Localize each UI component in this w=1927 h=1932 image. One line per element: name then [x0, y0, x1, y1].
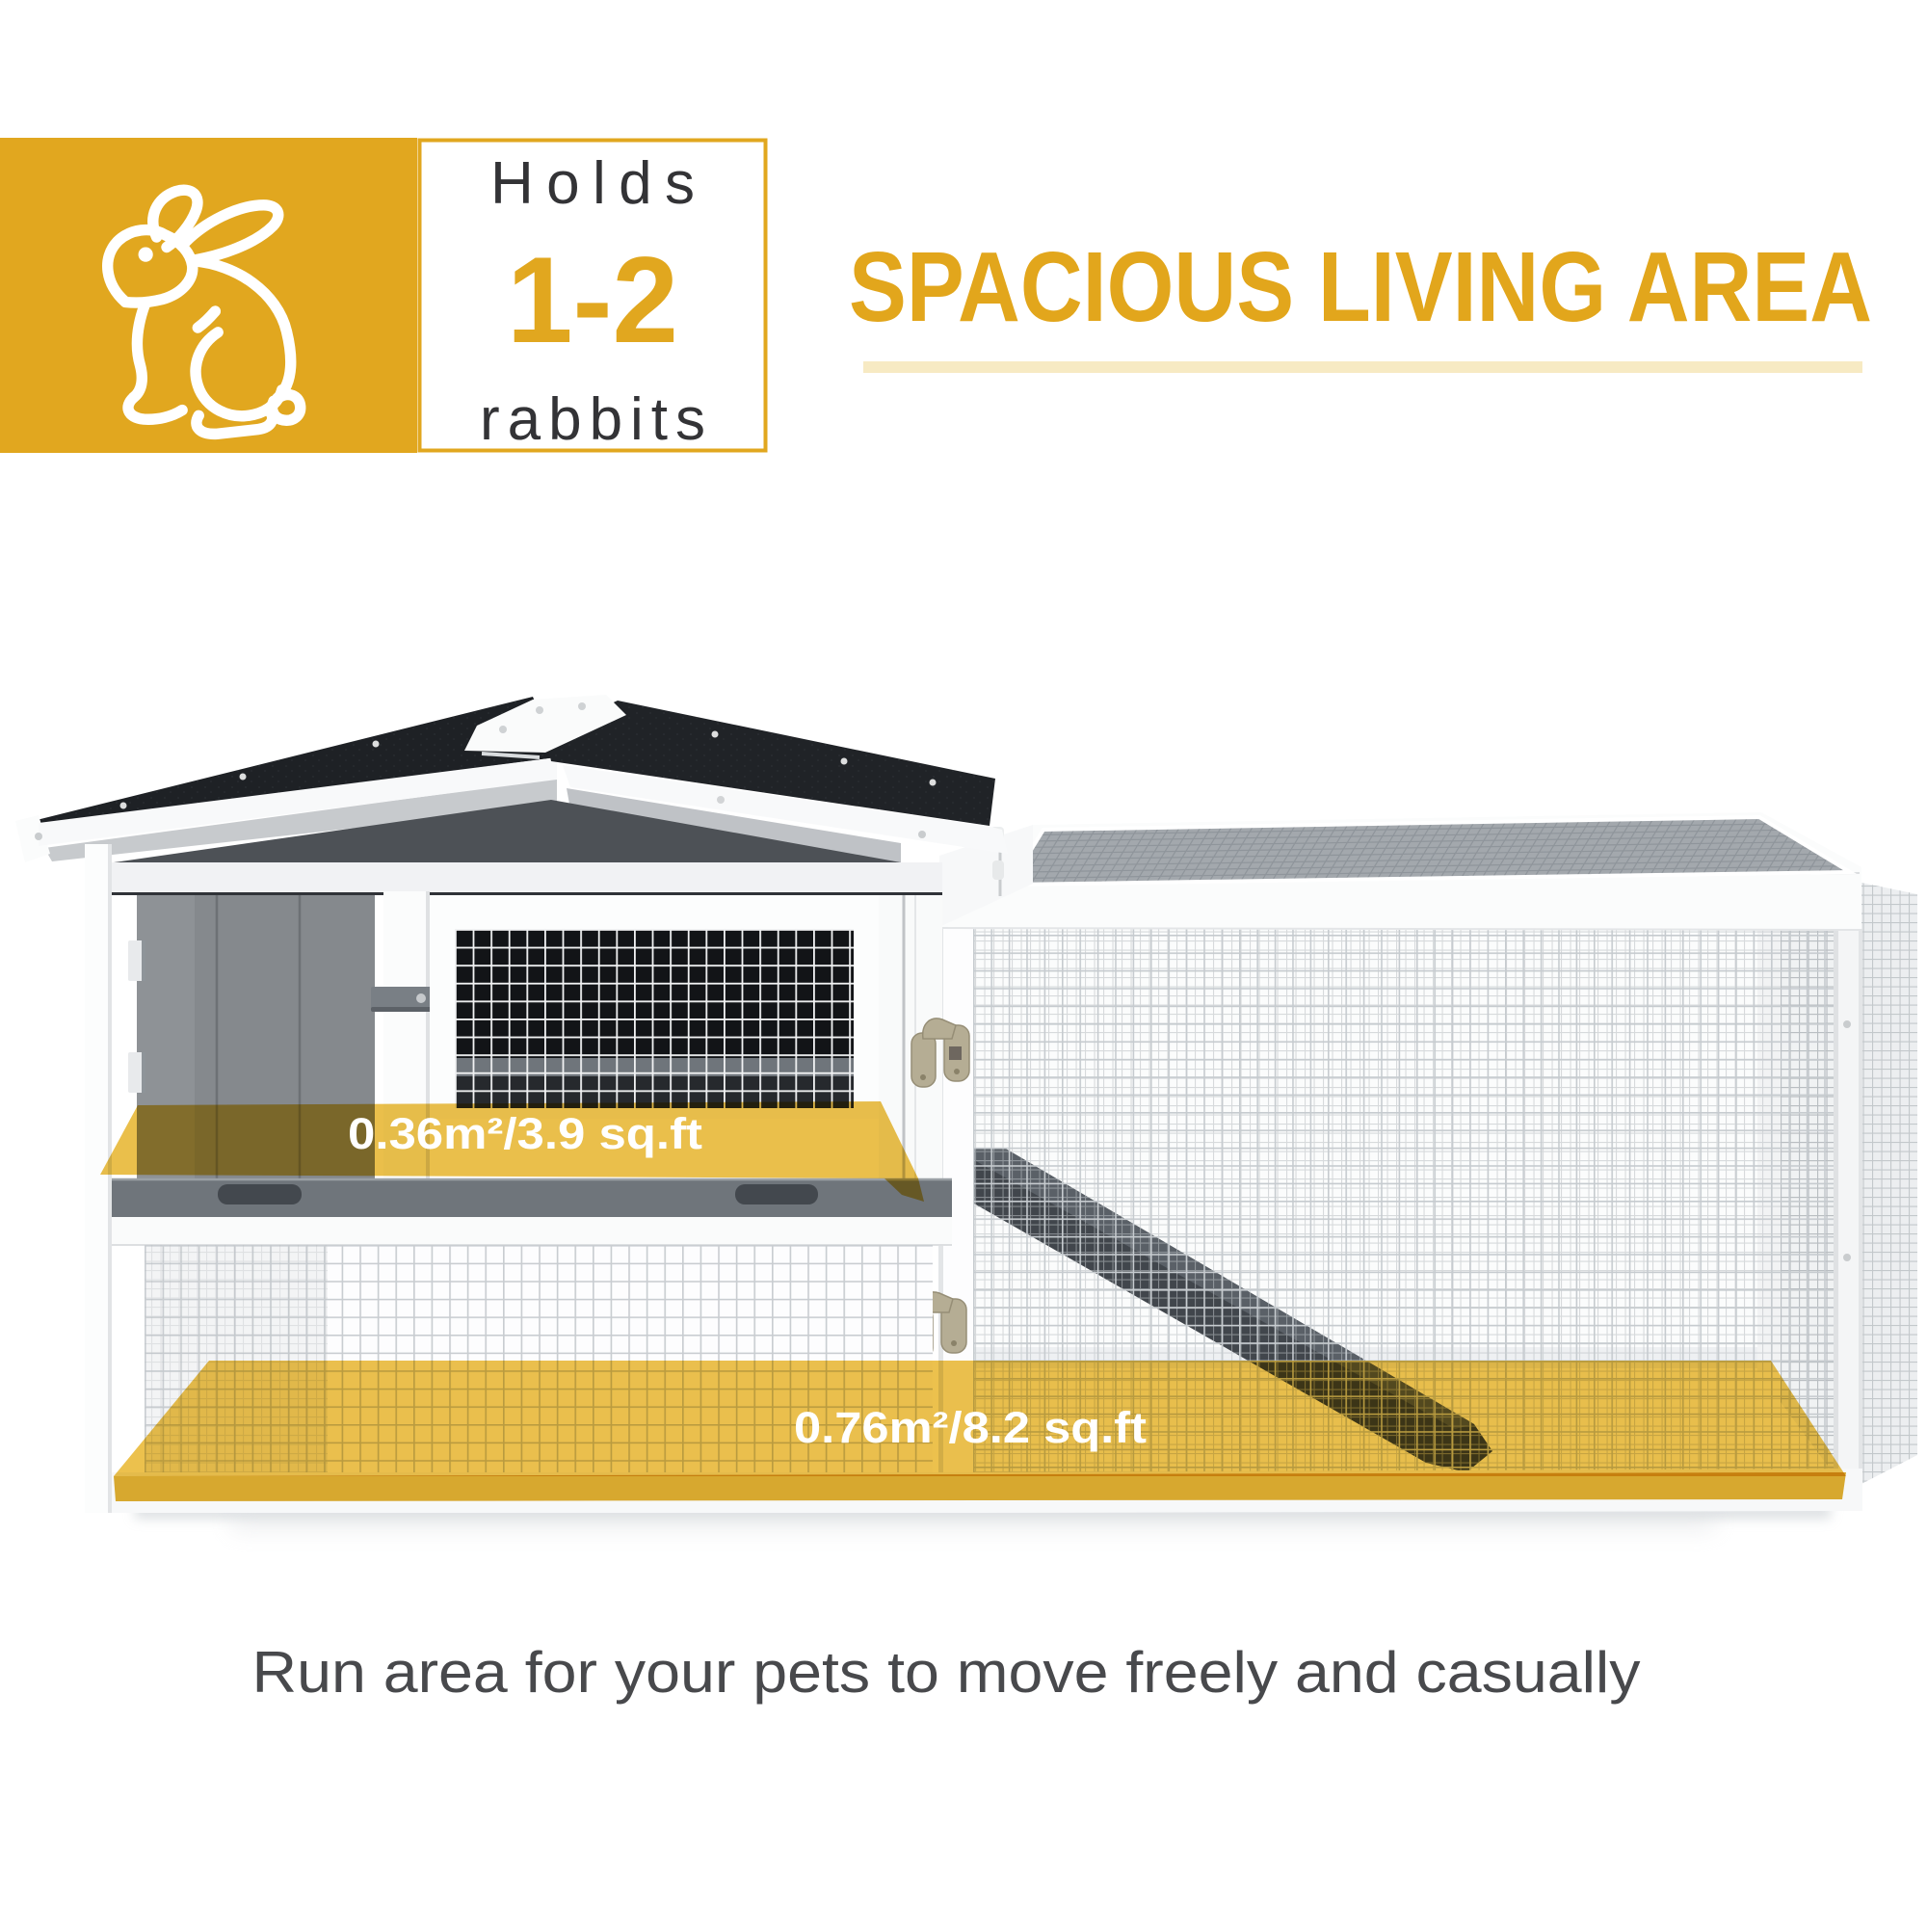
svg-text:1-2: 1-2: [507, 231, 678, 368]
svg-text:SPACIOUS LIVING AREA: SPACIOUS LIVING AREA: [849, 231, 1872, 342]
svg-text:Run area for your pets to move: Run area for your pets to move freely an…: [252, 1640, 1641, 1705]
svg-text:Holds: Holds: [490, 150, 695, 217]
svg-text:0.76m²/8.2 sq.ft: 0.76m²/8.2 sq.ft: [794, 1403, 1147, 1452]
svg-text:0.36m²/3.9 sq.ft: 0.36m²/3.9 sq.ft: [348, 1109, 702, 1158]
